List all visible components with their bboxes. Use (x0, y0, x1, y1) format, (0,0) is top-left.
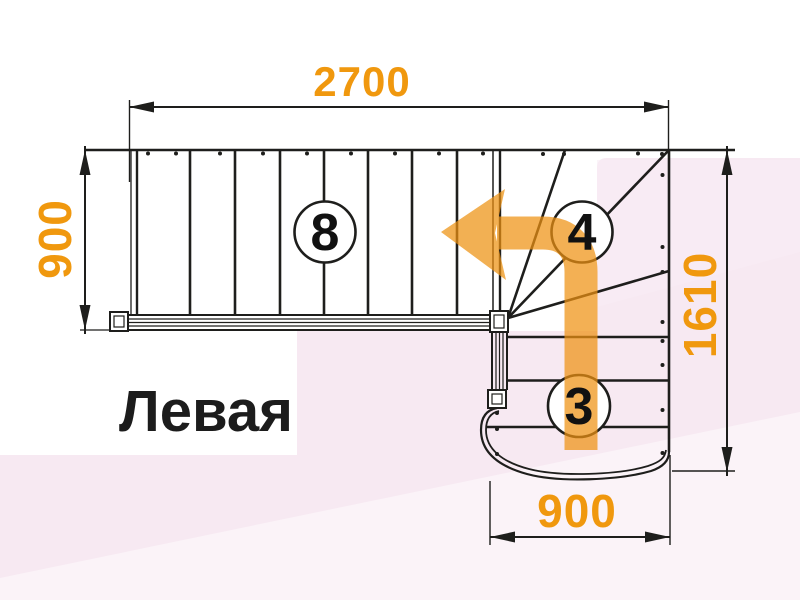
lower-flight-count: 3 (565, 378, 594, 436)
dimension-right-value: 1610 (674, 252, 726, 358)
newel-post-left (110, 312, 128, 331)
dimension-left-value: 900 (29, 199, 81, 279)
plan-title: Левая (119, 379, 293, 444)
staircase-plan: 8 4 3 2700 900 1610 (0, 0, 800, 600)
dimension-top-value: 2700 (313, 58, 410, 105)
staircase-plan-canvas: 8 4 3 2700 900 1610 (0, 0, 800, 600)
winder-count: 4 (568, 204, 597, 262)
newel-post-center (490, 311, 508, 332)
upper-flight-count: 8 (311, 204, 340, 262)
newel-post-bottom (488, 390, 506, 408)
dimension-bottom-value: 900 (537, 485, 617, 537)
